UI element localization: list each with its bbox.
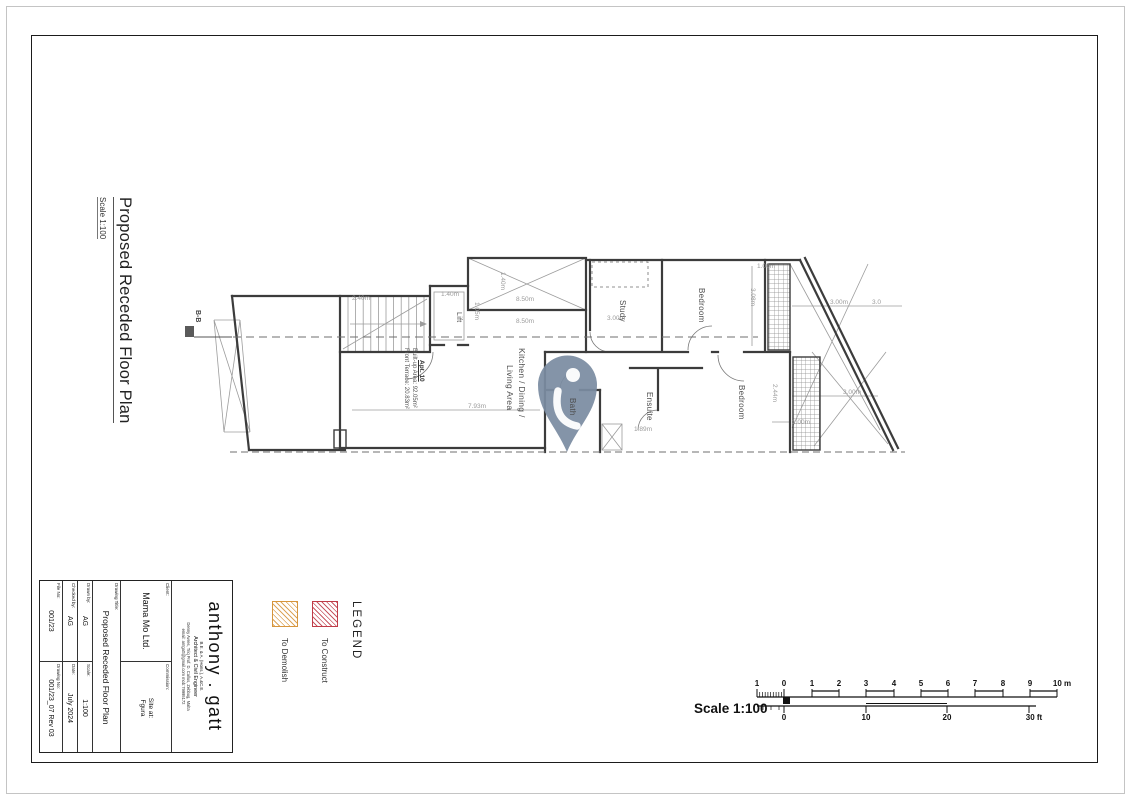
scalebar-ft-unit: 30 ft	[1026, 713, 1042, 722]
client-commission-row: Client: Mama Mo Ltd. Commission: Site at…	[120, 581, 172, 752]
commission-label: Commission:	[165, 664, 170, 690]
drawing-no-value: 001/23_07 Rev 03	[47, 679, 54, 736]
scalebar-m-tick: 2	[837, 679, 841, 688]
scale-value: 1:100	[81, 699, 88, 717]
architect-address: Denny Avres, Triq Prof. D. Callus, Zebbu…	[186, 622, 191, 710]
scalebar-caption: Scale 1:100	[694, 701, 768, 716]
commission-cell: Commission: Site at: Fgura	[121, 662, 172, 754]
drawn-by-value: AG	[81, 616, 88, 626]
legend-row-construct: To Construct	[312, 601, 338, 723]
drawn-by-label: Drawn by:	[86, 583, 91, 603]
legend-title: LEGEND	[350, 601, 362, 723]
apartment-front-terrace: Front Terrace: 20.83m²	[403, 348, 409, 409]
dim-terrace-c: 3.00m	[843, 389, 861, 396]
dim-balcony-top-width: 1.00m	[757, 263, 775, 270]
scalebar-m-tick: 6	[946, 679, 950, 688]
date-label: Date:	[71, 664, 76, 675]
dim-kitchen-width: 8.50m	[516, 318, 534, 325]
commission-line1: Site at:	[146, 698, 154, 718]
room-label-bath: Bath	[568, 398, 577, 416]
scalebar-m-tick: 4	[892, 679, 896, 688]
drawn-by-cell: Drawn by: AG	[78, 581, 92, 662]
client-label: Client:	[165, 583, 170, 596]
architect-contact: email: antgatt@gmail.com mob:79995172	[181, 629, 186, 705]
drawing-title-label: Drawing Title:	[114, 583, 119, 610]
architect-profession: Architect & Civil Engineer	[192, 636, 198, 697]
room-label-lift: Lift	[455, 312, 462, 323]
client-value: Mama Mo Ltd.	[141, 592, 151, 650]
dim-balcony-bottom-width: 1.00m	[792, 419, 810, 426]
drawing-title-value: Proposed Receded Floor Plan	[101, 605, 111, 731]
checked-by-cell: Checked by: AG	[63, 581, 77, 662]
legend: LEGEND To Construct To Demolish	[258, 601, 362, 723]
balcony-bottom-hatch	[793, 357, 820, 450]
dim-ensuite-width: 1.89m	[634, 426, 652, 433]
construct-label: To Construct	[321, 638, 330, 683]
file-no-cell: File No: 001/23	[40, 581, 62, 662]
dim-lift-width: 1.40m	[441, 291, 459, 298]
scalebar-m-tick: 8	[1001, 679, 1005, 688]
scalebar-m-tick: 5	[919, 679, 923, 688]
page-scale-note: Scale 1:100	[97, 197, 107, 239]
drawn-scale-row: Drawn by: AG Scale: 1:100	[77, 581, 92, 752]
drawing-title-block: Proposed Receded Floor Plan Scale 1:100	[99, 197, 134, 447]
dim-shaft-depth: 1.40m	[499, 272, 506, 290]
construct-hatch-swatch	[312, 601, 338, 627]
file-no-value: 001/23	[47, 610, 54, 631]
apartment-name: Apt. 10	[418, 360, 425, 382]
checked-date-row: Checked by: AG Date: July 2024	[62, 581, 77, 752]
drawing-title-row: Drawing Title: Proposed Receded Floor Pl…	[92, 581, 120, 752]
page-title: Proposed Receded Floor Plan	[113, 197, 134, 423]
room-label-bedroom-bottom: Bedroom	[737, 385, 746, 420]
date-value: July 2024	[66, 693, 73, 723]
scalebar-ft-tick: 10	[862, 713, 871, 722]
scalebar-graphics	[757, 689, 1057, 713]
dim-bedroom-top-depth: 3.08m	[749, 288, 756, 306]
drawing-no-cell: Drawing No: 001/23_07 Rev 03	[40, 662, 62, 754]
architect-name: anthony . gatt	[206, 601, 224, 731]
drawing-no-label: Drawing No:	[56, 664, 61, 689]
scalebar-m-tick: 3	[864, 679, 868, 688]
dim-terrace-a: 3.00m	[830, 299, 848, 306]
client-cell: Client: Mama Mo Ltd.	[121, 581, 172, 662]
date-cell: Date: July 2024	[63, 662, 77, 754]
room-label-bedroom-top: Bedroom	[697, 288, 706, 323]
checked-by-value: AG	[66, 616, 73, 626]
balcony-top-hatch	[768, 264, 790, 350]
scalebar-ft-tick: 0	[782, 713, 786, 722]
section-marker-flag	[185, 326, 232, 337]
scale-cell: Scale: 1:100	[78, 662, 92, 754]
architect-header: anthony . gatt B.E. & A. (Hons.), A.&C.E…	[171, 581, 232, 752]
dim-shaft-width: 8.50m	[516, 296, 534, 303]
file-drawingno-row: File No: 001/23 Drawing No: 001/23_07 Re…	[40, 581, 62, 752]
pin-dot	[566, 368, 580, 382]
scalebar-m-tick: 9	[1028, 679, 1032, 688]
drawing-title-cell: Drawing Title: Proposed Receded Floor Pl…	[93, 581, 120, 754]
section-label: B-B	[194, 310, 201, 322]
checked-by-label: Checked by:	[71, 583, 76, 608]
scalebar-m-tick: 1	[755, 679, 759, 688]
demolish-hatch-swatch	[272, 601, 298, 627]
file-no-label: File No:	[56, 583, 61, 599]
scalebar-m-tick: 0	[782, 679, 786, 688]
room-label-ensuite: Ensuite	[645, 392, 654, 421]
dim-bedroom-bottom-depth: 2.44m	[771, 384, 778, 402]
title-block: anthony . gatt B.E. & A. (Hons.), A.&C.E…	[39, 580, 233, 753]
scalebar-ft-tick: 20	[943, 713, 952, 722]
scale-label: Scale:	[86, 664, 91, 677]
architect-credentials: B.E. & A. (Hons.), A.&C.E.	[199, 642, 204, 692]
scalebar-m-tick: 1	[810, 679, 814, 688]
dim-lift-depth: 1.05m	[473, 302, 480, 320]
room-label-study: Study	[618, 300, 627, 322]
dim-kitchen-length: 7.93m	[468, 403, 486, 410]
demolish-label: To Demolish	[281, 638, 290, 682]
scalebar-m-unit: 10 m	[1053, 679, 1071, 688]
apartment-built-up-area: Built-up Area: 92.05m²	[411, 348, 417, 408]
room-label-kitchen-line1: Kitchen / Dining /	[517, 348, 527, 418]
dim-terrace-b: 3.0	[872, 299, 881, 306]
legend-row-demolish: To Demolish	[272, 601, 298, 723]
dim-stairs-width: 2.40m	[352, 295, 370, 302]
scalebar-m-tick: 7	[973, 679, 977, 688]
commission-line2: Fgura	[138, 700, 146, 717]
room-label-kitchen-line2: Living Area	[505, 365, 515, 410]
